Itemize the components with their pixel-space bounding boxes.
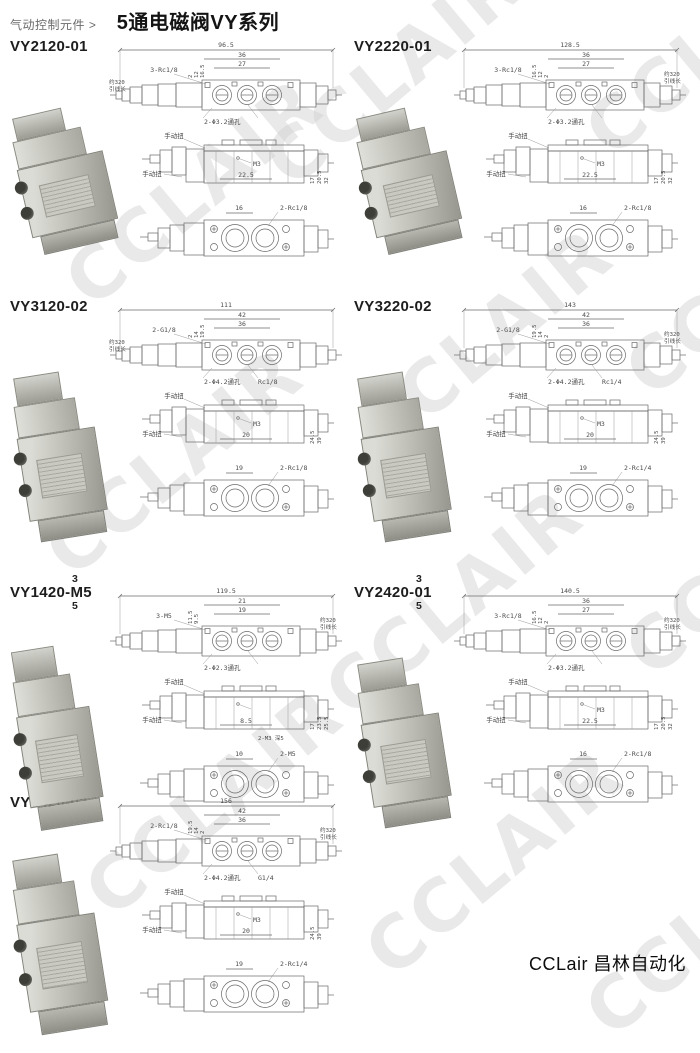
top-view: 96.5 36 27 3-Rc1/8 [109,41,342,126]
dim-inner: 27 [238,60,246,68]
lead-length-label: 约320 [664,616,680,624]
lead-length-label: 引线长 [664,77,681,85]
mount-thread-label: M3 [253,160,261,168]
height-dim: 17 [310,177,316,184]
bottom-dim: 19 [235,464,243,472]
manual-override-label: 手动扭 [164,131,184,140]
product-photo [7,366,117,547]
side-dim: 2 [544,621,550,624]
dim-mid: 21 [238,597,246,605]
through-hole-label: 2-Φ4.2通孔 [548,377,585,386]
height-dim: 32 [668,177,674,184]
lead-length-label: 约320 [664,70,680,78]
photo-label [35,734,83,783]
dim-inner: 19 [238,606,246,614]
bottom-dim: 16 [579,750,587,758]
catalog-sections: VY2120-01 96.5 36 27 3-Rc1/8 [0,0,700,998]
bottom-thread-label: 2-Rc1/8 [624,204,651,212]
port-count-bottom: 5 [72,601,92,612]
manual-override-label: 手动扭 [142,169,162,178]
side-dim: 9.5 [194,614,200,624]
front-view: 手动扭 手动扭 [142,677,334,742]
front-view: 手动扭 手动扭 M3 [142,887,334,940]
product-code: VY3120-02 [10,299,88,315]
manual-override-label: 手动扭 [508,131,528,140]
front-dim: 22.5 [582,717,598,725]
manual-override-label: 手动扭 [142,925,162,934]
product-section: 3 VY2420-01 5 140.5 36 27 3-Rc1/8 [352,574,697,829]
top-view: 111 42 36 2-G1/8 [109,301,342,386]
side-dim: 2 [544,335,550,338]
lead-length-label: 约320 [109,78,125,86]
height-dim: 24.5 [654,431,660,444]
lead-length-label: 引线长 [320,833,337,841]
product-code-block: VY2220-01 [354,28,432,66]
bottom-dim: 19 [579,464,587,472]
height-dim: 24.5 [310,431,316,444]
front-dim: 20 [586,431,594,439]
bottom-view: 19 2-Rc1/4 [484,464,678,516]
front-view: 手动扭 手动扭 M3 [142,391,334,444]
dim-inner: 27 [582,60,590,68]
dim-overall: 119.5 [216,587,236,595]
bottom-view: 19 2-Rc1/4 [140,960,334,1012]
bottom-dim: 16 [235,204,243,212]
product-section: VY3220-02 143 42 36 2-G1/8 [352,288,697,543]
photo-valve-body [16,913,108,1014]
bottom-view: 16 2-Rc1/8 [484,204,678,256]
front-dim: 22.5 [582,171,598,179]
depth-thread-label: 2-M3 深5 [258,734,284,742]
photo-label [383,174,440,218]
manual-override-label: 手动扭 [486,429,506,438]
photo-label [37,940,88,989]
through-hole-label: 2-Φ4.2通孔 [204,377,241,386]
through-hole-label: 2-Φ3.2通孔 [548,663,585,672]
photo-valve-body [361,713,452,808]
lead-length-label: 约320 [109,338,125,346]
product-section: VY2120-01 96.5 36 27 3-Rc1/8 [8,28,353,283]
top-view: 128.5 36 27 3-Rc1/8 [454,41,686,126]
photo-port [18,766,33,781]
dim-mid: 42 [238,311,246,319]
top-view: 140.5 36 27 3-Rc1/8 [454,587,686,672]
thread-spec-label: 3-M5 [156,612,172,620]
port-count-bottom [72,315,88,326]
manual-override-label: 手动扭 [508,677,528,686]
lead-length-label: 约320 [320,616,336,624]
product-section: VY3120-02 111 42 36 2-G1/8 [8,288,353,543]
port-thread-label: Rc1/8 [258,378,278,386]
dim-overall: 128.5 [560,41,580,49]
lead-length-label: 引线长 [109,85,126,93]
photo-port [13,939,28,954]
dim-overall: 143 [564,301,576,309]
manual-override-label: 手动扭 [164,391,184,400]
dim-inner: 36 [582,320,590,328]
height-dim: 17 [654,177,660,184]
thread-spec-label: 2-Rc1/8 [150,822,177,830]
photo-label [381,739,432,785]
through-hole-label: 2-Φ4.2通孔 [204,873,241,882]
photo-port [18,483,33,498]
mount-thread-label: M3 [597,420,605,428]
height-dim: 39 [661,437,667,444]
photo-valve-body [361,427,452,522]
bottom-view: 16 2-Rc1/8 [484,750,678,802]
bottom-view: 16 2-Rc1/8 [140,204,334,256]
dim-inner: 36 [238,816,246,824]
bottom-view: 19 2-Rc1/8 [140,464,334,516]
bottom-dim: 19 [235,960,243,968]
bottom-dim: 16 [579,204,587,212]
product-code: VY2220-01 [354,39,432,55]
port-count-bottom [72,55,88,66]
product-code: VY3220-02 [354,299,432,315]
front-dim: 20 [242,431,250,439]
technical-drawing: 140.5 36 27 3-Rc1/8 [452,584,692,826]
front-view: 手动扭 手动扭 M3 [142,131,334,184]
dim-mid: 36 [582,51,590,59]
side-dim: 2 [200,831,206,834]
manual-override-label: 手动扭 [164,677,184,686]
photo-valve-body [16,706,103,808]
photo-label [37,453,88,499]
height-dim: 39 [317,933,323,940]
height-dim: 32 [324,177,330,184]
product-code: VY2420-01 [354,585,432,601]
port-count-bottom: 5 [416,601,432,612]
product-code: VY1420-M5 [10,585,92,601]
top-view: 156 42 36 2-Rc1/8 [110,797,342,882]
front-dim: 22.5 [238,171,254,179]
dim-overall: 156 [220,797,232,805]
port-thread-label: G1/4 [258,874,274,882]
product-photo [351,366,461,547]
technical-drawing: 128.5 36 27 3-Rc1/8 [452,38,692,280]
bottom-thread-label: 2-Rc1/4 [280,960,307,968]
lead-length-label: 引线长 [320,623,337,631]
dim-inner: 36 [238,320,246,328]
thread-spec-label: 2-G1/8 [496,326,520,334]
height-dim: 20.5 [661,171,667,184]
technical-drawing: 156 42 36 2-Rc1/8 [108,794,348,1036]
front-view: 手动扭 手动扭 M3 [486,131,678,184]
photo-port [363,206,379,222]
height-dim: 39 [317,437,323,444]
photo-label [39,174,96,218]
manual-override-label: 手动扭 [142,429,162,438]
bottom-thread-label: 2-Rc1/8 [280,464,307,472]
height-dim: 20.5 [661,717,667,730]
manual-override-label: 手动扭 [486,715,506,724]
product-photo [6,849,117,1042]
thread-spec-label: 2-G1/8 [152,326,176,334]
port-count-bottom [416,55,432,66]
photo-port [357,180,373,196]
mount-thread-label: M3 [597,160,605,168]
mount-thread-label: M3 [253,420,261,428]
dim-overall: 111 [220,301,232,309]
bottom-thread-label: 2-Rc1/8 [280,204,307,212]
height-dim: 20.5 [317,171,323,184]
photo-port [362,769,377,784]
front-view: 手动扭 手动扭 M3 [486,391,678,444]
lead-length-label: 引线长 [109,345,126,353]
product-code-block: VY3120-02 [10,288,88,326]
technical-drawing: 143 42 36 2-G1/8 [452,298,692,540]
photo-port [357,452,372,467]
height-dim: 17 [310,723,316,730]
product-section: VY2220-01 128.5 36 27 3-Rc1/8 [352,28,697,283]
technical-drawing: 96.5 36 27 3-Rc1/8 [108,38,348,280]
technical-drawing: 111 42 36 2-G1/8 [108,298,348,540]
dim-mid: 36 [238,51,246,59]
dim-overall: 140.5 [560,587,580,595]
through-hole-label: 2-Φ3.2通孔 [204,117,241,126]
through-hole-label: 2-Φ3.2通孔 [548,117,585,126]
dim-mid: 42 [582,311,590,319]
photo-port [19,206,35,222]
footer-brand: CCLair 昌林自动化 [529,950,686,976]
product-photo [351,652,461,833]
height-dim: 25.5 [324,717,330,730]
lead-length-label: 约320 [320,826,336,834]
thread-spec-label: 3-Rc1/8 [494,612,521,620]
product-code: VY2120-01 [10,39,88,55]
front-view: 手动扭 手动扭 M3 [486,677,678,730]
lead-length-label: 约320 [664,330,680,338]
page-title: 5通电磁阀VY系列 [117,12,279,34]
height-dim: 23.5 [317,717,323,730]
photo-label [381,453,432,499]
thread-spec-label: 3-Rc1/8 [150,66,177,74]
breadcrumb: 气动控制元件 > [10,18,96,32]
side-dim: 16.5 [200,65,206,78]
manual-override-label: 手动扭 [164,887,184,896]
front-dim: 20 [242,927,250,935]
photo-port [357,738,372,753]
side-dim: 19.5 [200,325,206,338]
bottom-thread-label: 2-M5 [280,750,296,758]
page-header: 气动控制元件 > 5通电磁阀VY系列 [10,6,279,35]
thread-spec-label: 3-Rc1/8 [494,66,521,74]
dim-mid: 36 [582,597,590,605]
height-dim: 17 [654,723,660,730]
photo-port [13,452,28,467]
height-dim: 24.5 [310,927,316,940]
manual-override-label: 手动扭 [142,715,162,724]
product-code-block: 3 VY1420-M5 5 [10,574,92,612]
height-dim: 32 [668,723,674,730]
manual-override-label: 手动扭 [508,391,528,400]
through-hole-label: 2-Φ2.3通孔 [204,663,241,672]
port-thread-label: Rc1/4 [602,378,622,386]
dim-overall: 96.5 [218,41,234,49]
mount-thread-label: M3 [253,916,261,924]
front-dim: 8.5 [240,717,252,725]
bottom-thread-label: 2-Rc1/4 [624,464,651,472]
photo-valve-body [17,427,108,522]
mount-thread-label: M3 [597,706,605,714]
bottom-dim: 10 [235,750,243,758]
photo-port [362,483,377,498]
top-view: 143 42 36 2-G1/8 [454,301,686,386]
product-code-block: VY3220-02 [354,288,432,326]
product-code-block: 3 VY2420-01 5 [354,574,432,612]
port-count-bottom [416,315,432,326]
lead-length-label: 引线长 [664,623,681,631]
dim-inner: 27 [582,606,590,614]
photo-port [18,972,33,987]
top-view: 119.5 21 19 3-M5 [110,587,342,672]
photo-port [13,732,28,747]
bottom-thread-label: 2-Rc1/8 [624,750,651,758]
lead-length-label: 引线长 [664,337,681,345]
photo-port [13,180,29,196]
dim-mid: 42 [238,807,246,815]
side-dim: 2 [544,75,550,78]
manual-override-label: 手动扭 [486,169,506,178]
